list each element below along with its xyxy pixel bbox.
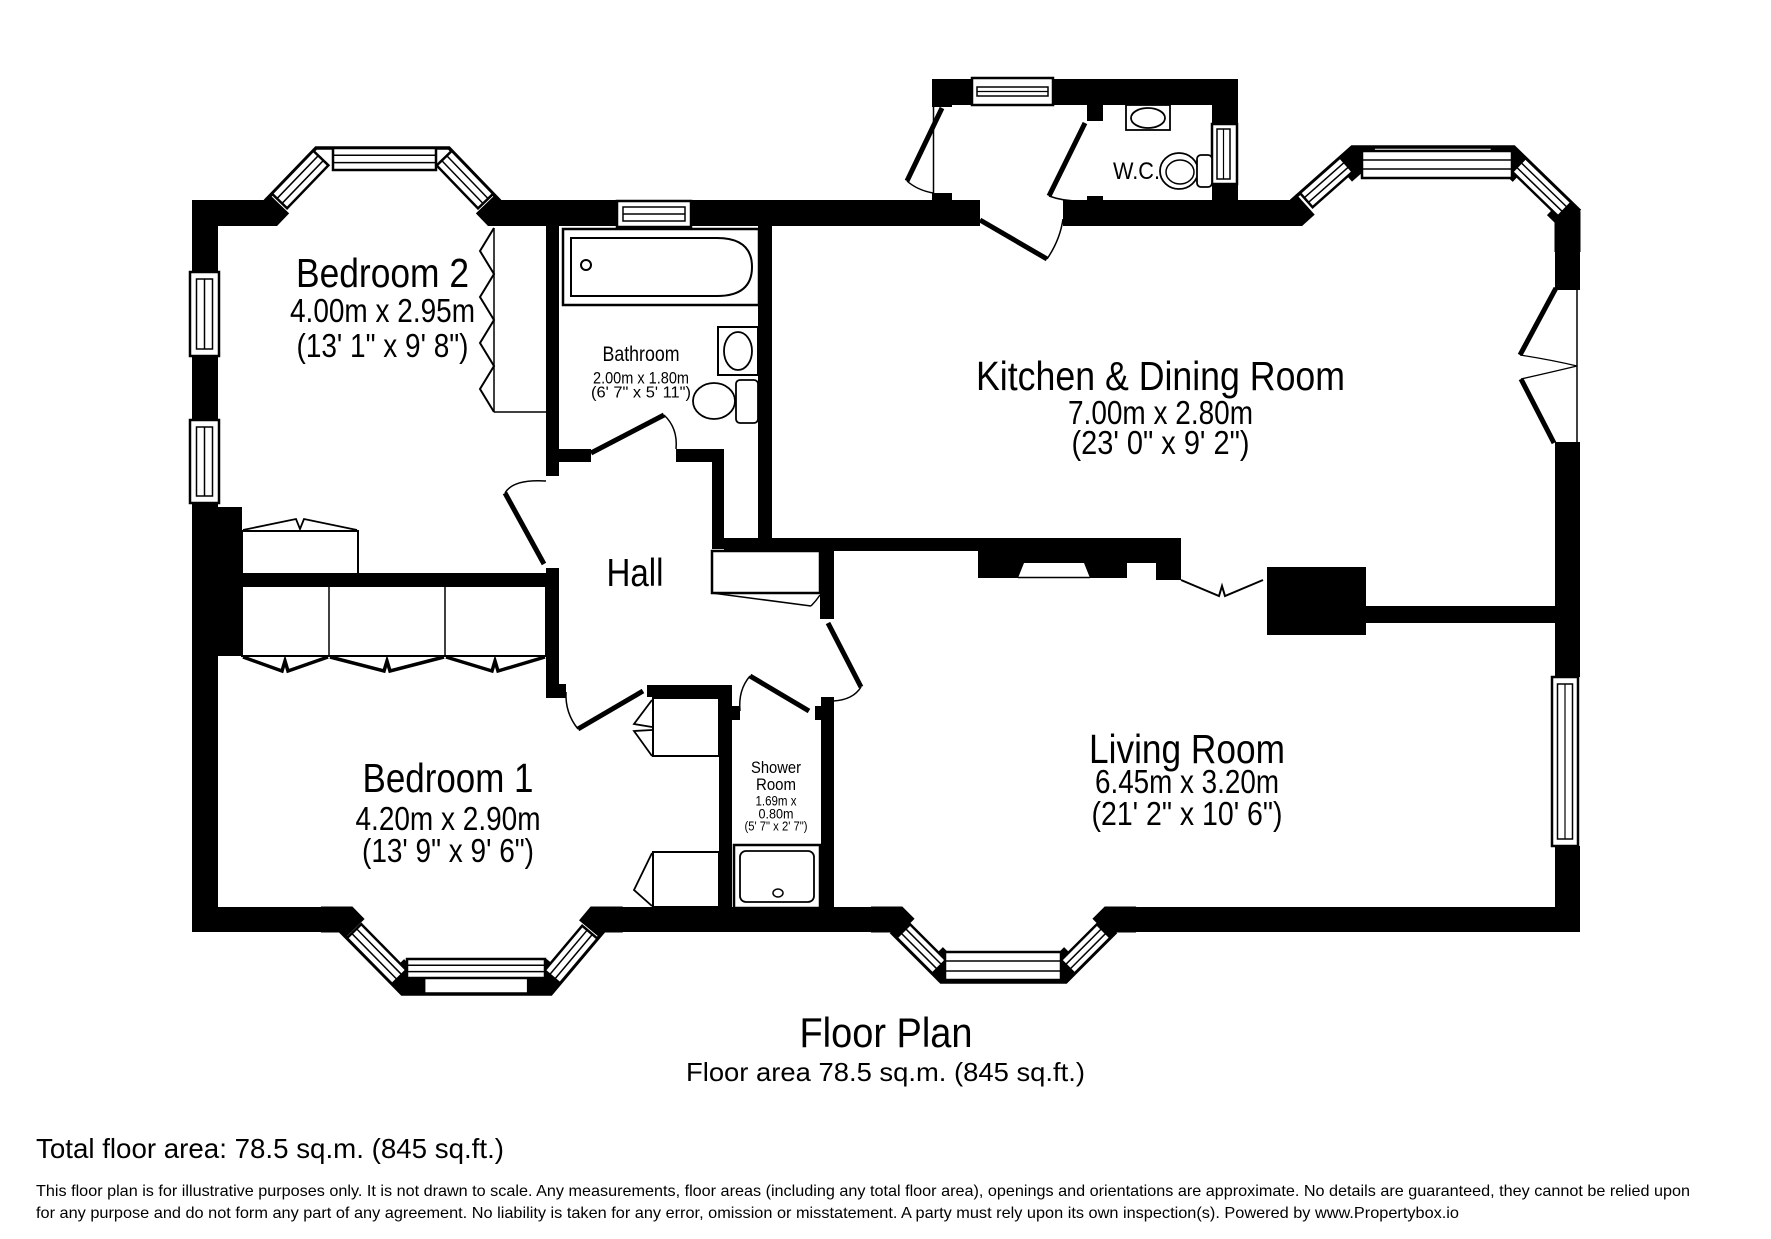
svg-text:(13' 9" x 9' 6"): (13' 9" x 9' 6")	[362, 832, 534, 869]
svg-text:Room: Room	[756, 776, 796, 794]
svg-text:Bedroom 2: Bedroom 2	[296, 250, 469, 296]
svg-text:(13' 1" x 9' 8"): (13' 1" x 9' 8")	[297, 327, 469, 364]
svg-text:(5' 7" x 2' 7"): (5' 7" x 2' 7")	[745, 820, 808, 834]
svg-text:for any purpose and do not for: for any purpose and do not form any part…	[36, 1205, 1459, 1222]
svg-text:Bedroom 1: Bedroom 1	[363, 755, 534, 801]
svg-text:Floor Plan: Floor Plan	[800, 1009, 973, 1056]
svg-text:Total floor area: 78.5 sq.m. (: Total floor area: 78.5 sq.m. (845 sq.ft.…	[36, 1133, 504, 1164]
svg-text:Floor area 78.5 sq.m. (845 sq.: Floor area 78.5 sq.m. (845 sq.ft.)	[686, 1057, 1085, 1087]
svg-text:4.00m x 2.95m: 4.00m x 2.95m	[290, 292, 475, 329]
svg-text:This floor plan is for illustr: This floor plan is for illustrative purp…	[36, 1183, 1690, 1200]
svg-text:Shower: Shower	[751, 759, 801, 777]
svg-text:Hall: Hall	[607, 552, 664, 595]
svg-text:(23' 0" x 9' 2"): (23' 0" x 9' 2")	[1072, 424, 1250, 461]
svg-text:Bathroom: Bathroom	[603, 342, 680, 366]
svg-text:W.C.: W.C.	[1113, 158, 1160, 185]
svg-text:Kitchen & Dining Room: Kitchen & Dining Room	[976, 353, 1345, 399]
svg-text:(21' 2" x 10' 6"): (21' 2" x 10' 6")	[1092, 795, 1283, 832]
svg-text:(6' 7" x 5' 11"): (6' 7" x 5' 11")	[591, 385, 691, 402]
